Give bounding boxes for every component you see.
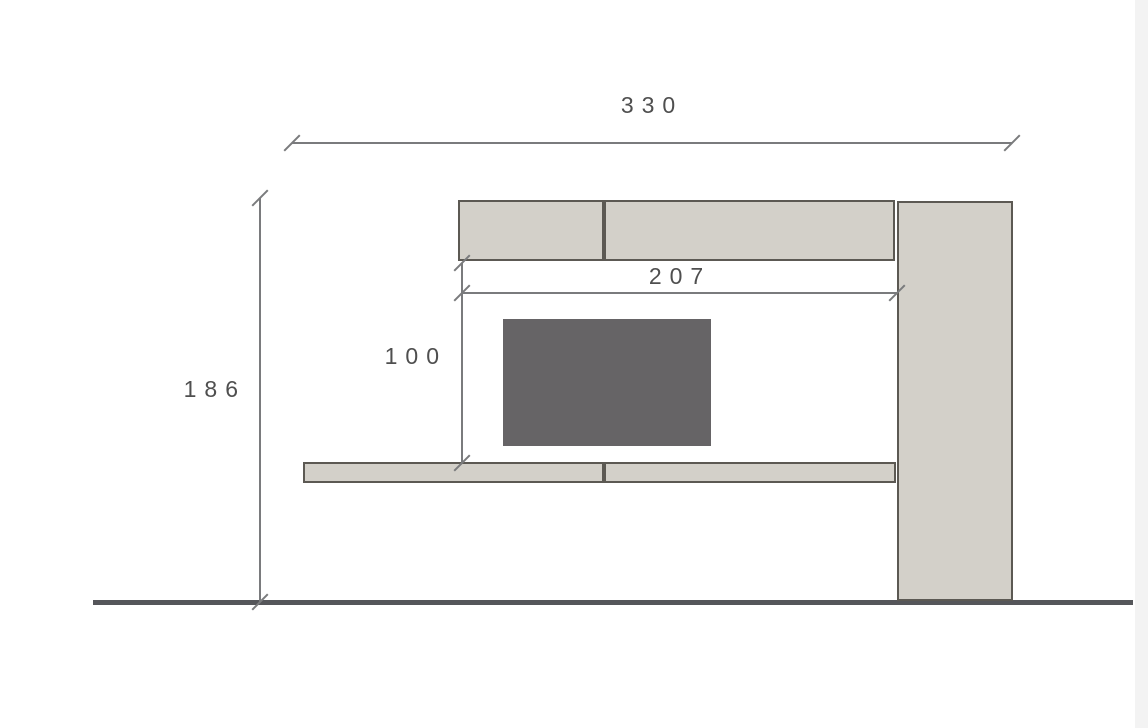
dim-label-total-width: 330 — [572, 92, 732, 119]
dim-line-total-height — [259, 198, 261, 602]
dim-line-niche-height — [461, 263, 463, 463]
shelf-left-segment — [303, 462, 604, 483]
dim-label-total-height: 186 — [146, 376, 246, 403]
dim-label-niche-width: 207 — [600, 263, 760, 290]
elevation-drawing-canvas: 330 186 207 100 — [0, 0, 1148, 728]
shelf-right-segment — [604, 462, 896, 483]
tv-panel — [503, 319, 711, 446]
dim-line-total-width — [292, 142, 1012, 144]
upper-cabinet-right — [604, 200, 895, 261]
dim-line-niche-width — [462, 292, 897, 294]
right-edge-strip — [1135, 0, 1148, 728]
upper-cabinet-left — [458, 200, 604, 261]
tall-cabinet — [897, 201, 1013, 601]
dim-label-niche-height: 100 — [347, 343, 447, 370]
